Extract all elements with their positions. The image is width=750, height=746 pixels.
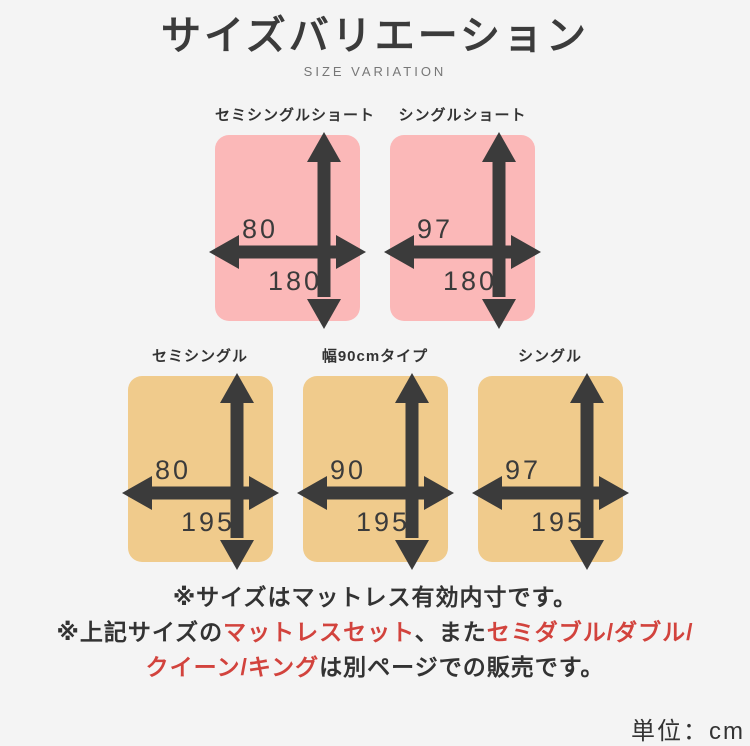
note-line-2: ※上記サイズのマットレスセット、またセミダブル/ダブル/ — [0, 615, 750, 650]
size-panel: セミシングル80195 — [128, 347, 273, 562]
width-arrow-icon — [209, 235, 366, 269]
height-value: 195 — [530, 507, 584, 537]
width-value: 97 — [417, 214, 453, 244]
unit-label: 単位：cm — [631, 711, 745, 746]
dimension-arrows-graphic: 90195 — [303, 376, 448, 562]
width-arrow-icon — [297, 476, 454, 510]
size-panel: セミシングルショート80180 — [215, 106, 360, 321]
height-value: 180 — [268, 266, 322, 296]
dimension-arrows-graphic: 97180 — [390, 135, 535, 321]
dimension-arrows-graphic: 97195 — [478, 376, 623, 562]
size-panel-label: セミシングルショート — [215, 106, 360, 125]
size-row-short: セミシングルショート80180シングルショート97180 — [0, 106, 750, 321]
size-panel-label: セミシングル — [128, 347, 273, 366]
size-panel-label: 幅90cmタイプ — [303, 347, 448, 366]
notes: ※サイズはマットレス有効内寸です。 ※上記サイズのマットレスセット、またセミダブ… — [0, 580, 750, 685]
height-arrow-icon — [307, 132, 341, 329]
size-panel: シングル97195 — [478, 347, 623, 562]
size-variation-diagram: セミシングルショート80180シングルショート97180 セミシングル80195… — [0, 106, 750, 685]
note-segment: は別ページでの販売です。 — [319, 654, 604, 680]
height-value: 180 — [443, 266, 497, 296]
width-arrow-icon — [384, 235, 541, 269]
page-subtitle: SIZE VARIATION — [0, 64, 750, 79]
note-segment-highlight: マットレスセット — [223, 619, 415, 645]
note-segment: ※上記サイズの — [57, 619, 224, 645]
height-value: 195 — [180, 507, 234, 537]
note-segment: 、また — [415, 619, 487, 645]
width-arrow-icon — [472, 476, 629, 510]
height-arrow-icon — [220, 373, 254, 570]
height-arrow-icon — [395, 373, 429, 570]
width-value: 80 — [242, 214, 278, 244]
mattress-rect: 90195 — [303, 376, 448, 562]
mattress-rect: 80180 — [215, 135, 360, 321]
mattress-rect: 97180 — [390, 135, 535, 321]
width-value: 80 — [154, 455, 190, 485]
page-title: サイズバリエーション — [0, 14, 750, 58]
height-arrow-icon — [482, 132, 516, 329]
dimension-arrows-graphic: 80180 — [215, 135, 360, 321]
size-panel-label: シングルショート — [390, 106, 535, 125]
note-line-1: ※サイズはマットレス有効内寸です。 — [0, 580, 750, 615]
width-value: 97 — [504, 455, 540, 485]
width-value: 90 — [329, 455, 365, 485]
dimension-arrows-graphic: 80195 — [128, 376, 273, 562]
size-panel: 幅90cmタイプ90195 — [303, 347, 448, 562]
size-row-regular: セミシングル80195幅90cmタイプ90195シングル97195 — [0, 347, 750, 562]
height-arrow-icon — [570, 373, 604, 570]
mattress-rect: 80195 — [128, 376, 273, 562]
note-segment-highlight: セミダブル/ダブル/ — [487, 619, 694, 645]
size-panel-label: シングル — [478, 347, 623, 366]
header: サイズバリエーション SIZE VARIATION — [0, 14, 750, 79]
size-panel: シングルショート97180 — [390, 106, 535, 321]
height-value: 195 — [355, 507, 409, 537]
note-line-3: クイーン/キングは別ページでの販売です。 — [0, 650, 750, 685]
note-segment-highlight: クイーン/キング — [146, 654, 320, 680]
width-arrow-icon — [122, 476, 279, 510]
mattress-rect: 97195 — [478, 376, 623, 562]
